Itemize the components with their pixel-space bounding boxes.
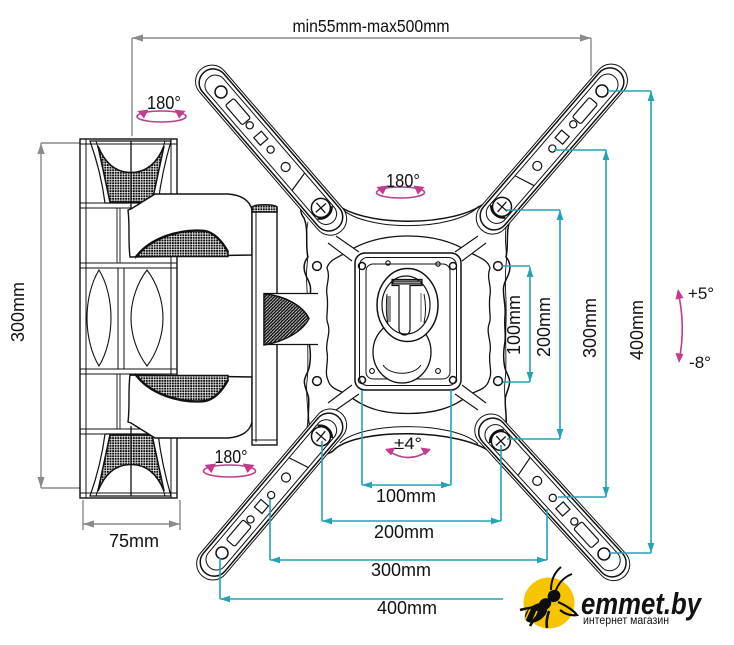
svg-text:400mm: 400mm — [627, 300, 647, 360]
svg-text:200mm: 200mm — [534, 297, 554, 357]
svg-text:min55mm-max500mm: min55mm-max500mm — [293, 16, 450, 36]
svg-text:300mm: 300mm — [8, 282, 28, 342]
svg-text:180°: 180° — [147, 93, 181, 113]
svg-text:300mm: 300mm — [580, 298, 600, 358]
svg-text:75mm: 75mm — [109, 531, 159, 551]
svg-text:300mm: 300mm — [371, 560, 431, 580]
svg-text:+5°: +5° — [688, 284, 714, 303]
svg-text:100mm: 100mm — [376, 486, 436, 506]
svg-text:±4°: ±4° — [394, 434, 422, 453]
svg-text:200mm: 200mm — [374, 522, 434, 542]
svg-text:400mm: 400mm — [377, 598, 437, 618]
svg-text:180°: 180° — [386, 171, 420, 191]
svg-text:-8°: -8° — [689, 353, 711, 372]
svg-text:интернет магазин: интернет магазин — [583, 615, 669, 627]
svg-text:180°: 180° — [215, 447, 248, 467]
svg-text:100mm: 100mm — [504, 295, 524, 355]
